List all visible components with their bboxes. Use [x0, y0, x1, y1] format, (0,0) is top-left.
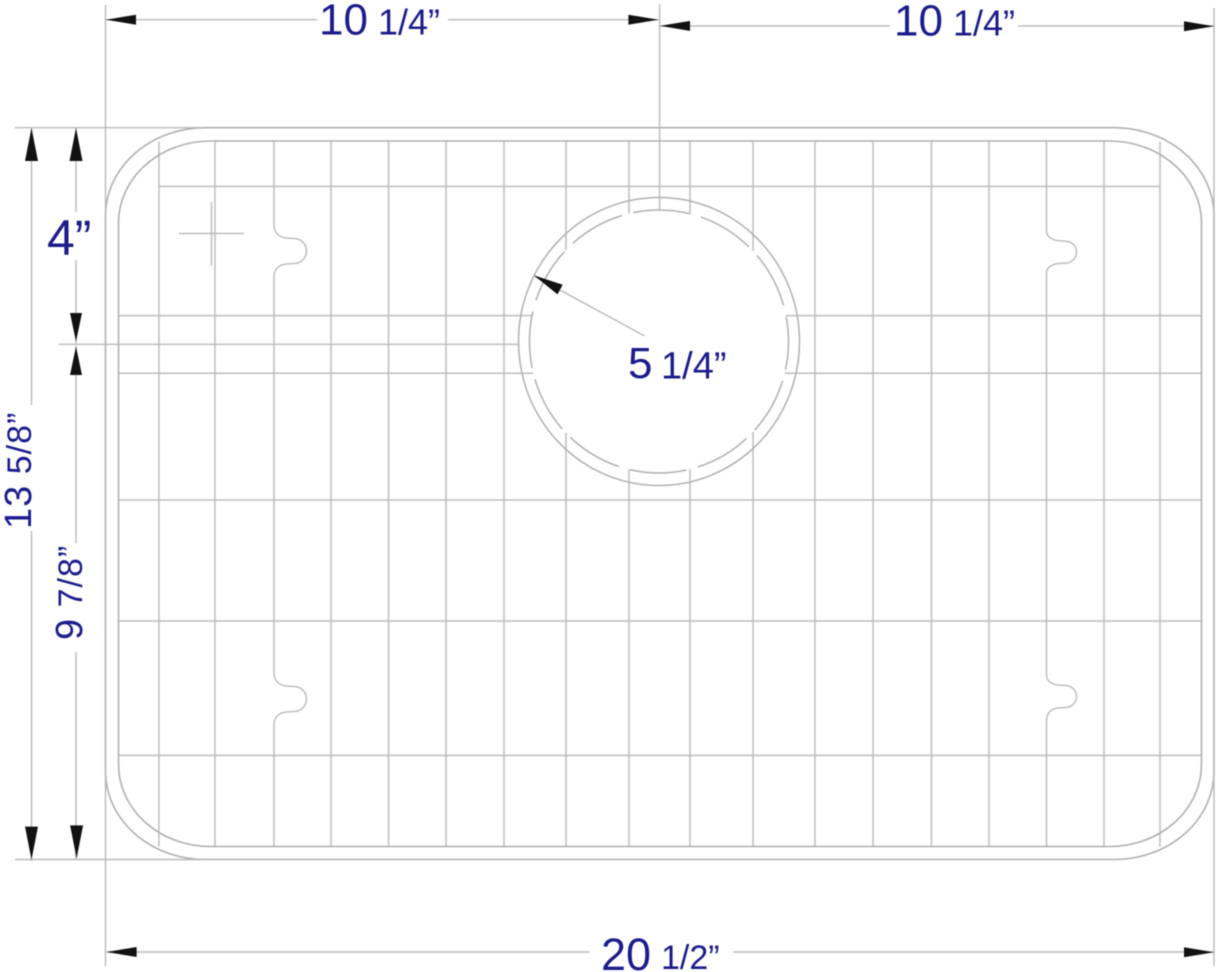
svg-text:10 1/4”: 10 1/4” [319, 0, 440, 45]
svg-text:13 5/8”: 13 5/8” [0, 412, 40, 529]
svg-text:4”: 4” [47, 210, 91, 266]
svg-text:51/4”: 51/4” [628, 339, 726, 388]
svg-text:9 7/8”: 9 7/8” [49, 545, 91, 640]
svg-text:10 1/4”: 10 1/4” [894, 0, 1015, 45]
